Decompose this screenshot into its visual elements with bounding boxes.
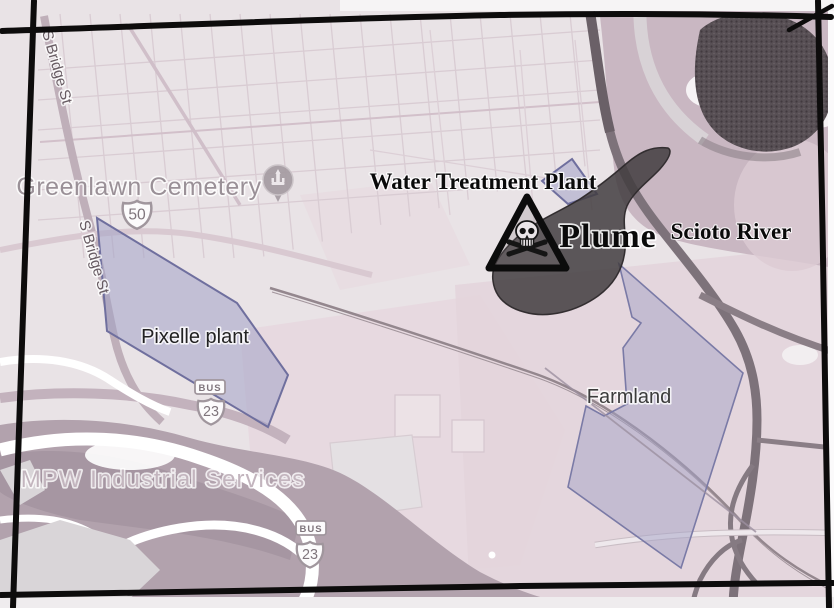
greenlawn-cemetery-label: Greenlawn Cemetery [16,173,261,201]
mpw-industrial-label: MPW Industrial Services [21,466,305,493]
bus-route-plate: BUS [296,521,326,535]
route-50-number: 50 [128,207,146,224]
bus-route-plate: BUS [195,380,225,394]
pixelle-plant-label: Pixelle plant [141,326,249,348]
scioto-river-label: Scioto River [671,219,792,244]
water-treatment-plant-label: Water Treatment Plant [370,169,597,194]
farmland-label: Farmland [587,386,671,408]
route-23-number: 23 [203,404,219,420]
plume-label: Plume [559,218,657,255]
map-canvas: 50 BUS 23 BUS 23 Greenlawn Cemetery S Br… [0,0,834,608]
route-23-number: 23 [302,547,318,563]
annotated-map: 50 BUS 23 BUS 23 Greenlawn Cemetery S Br… [0,0,834,608]
bus-text: BUS [198,383,221,394]
bus-text: BUS [299,524,322,535]
